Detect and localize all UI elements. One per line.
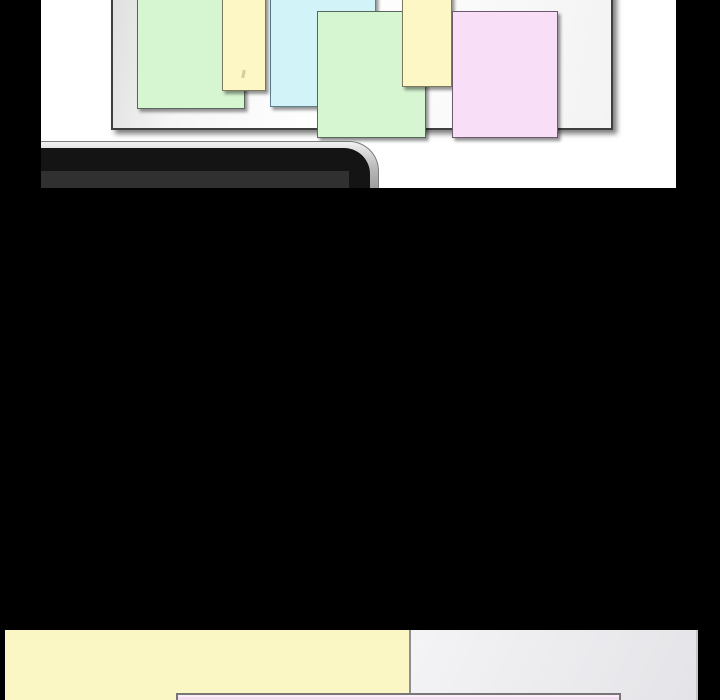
sticky-note-pink-1 [452,11,558,138]
laptop-keyboard-strip [41,171,349,188]
sticky-note-yellow-1 [222,0,266,91]
comic-strip-viewport [0,0,720,700]
comic-panel-bottom-right [409,630,698,700]
pencil-mark [241,70,246,78]
sticky-note-yellow-2 [402,0,452,87]
dialog-box [176,693,621,700]
laptop-edge [41,141,379,188]
comic-panel-bottom-left [5,630,409,700]
comic-panel-whiteboard-scene [41,0,676,188]
